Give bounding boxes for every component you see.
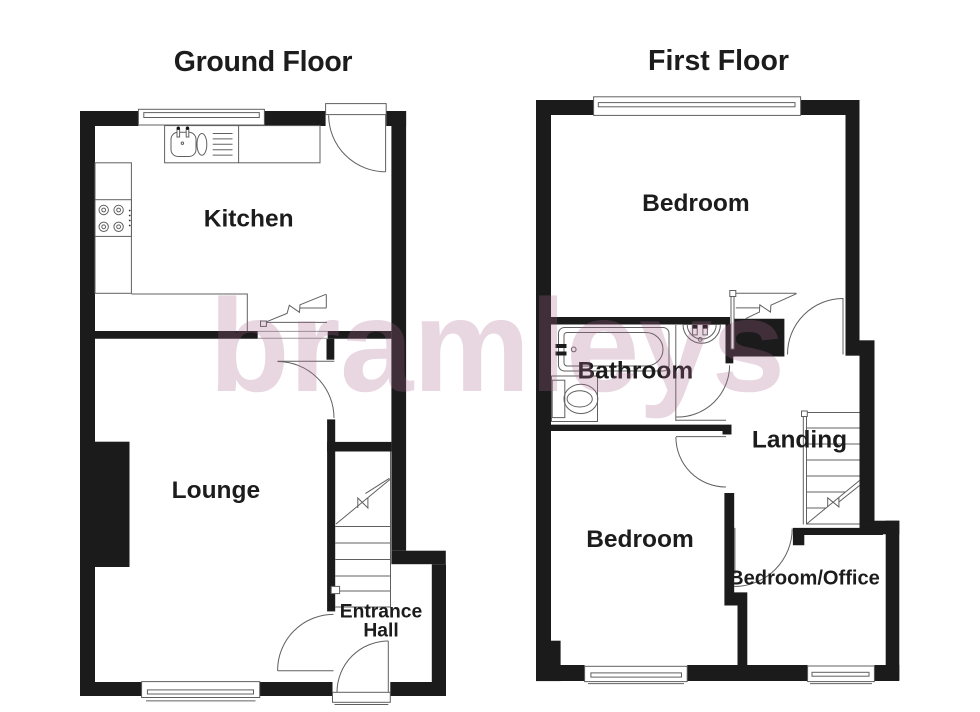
- svg-text:First Floor: First Floor: [648, 45, 789, 77]
- svg-text:Entrance: Entrance: [340, 601, 423, 622]
- svg-text:bramleys: bramleys: [209, 272, 785, 419]
- svg-text:Kitchen: Kitchen: [204, 206, 294, 233]
- svg-text:Bedroom: Bedroom: [586, 526, 694, 553]
- svg-text:Bedroom: Bedroom: [642, 190, 750, 217]
- svg-text:Bedroom/Office: Bedroom/Office: [729, 567, 880, 589]
- svg-text:Landing: Landing: [752, 426, 847, 453]
- svg-text:Ground Floor: Ground Floor: [174, 46, 353, 78]
- svg-text:Hall: Hall: [363, 621, 398, 642]
- svg-text:Lounge: Lounge: [172, 477, 260, 504]
